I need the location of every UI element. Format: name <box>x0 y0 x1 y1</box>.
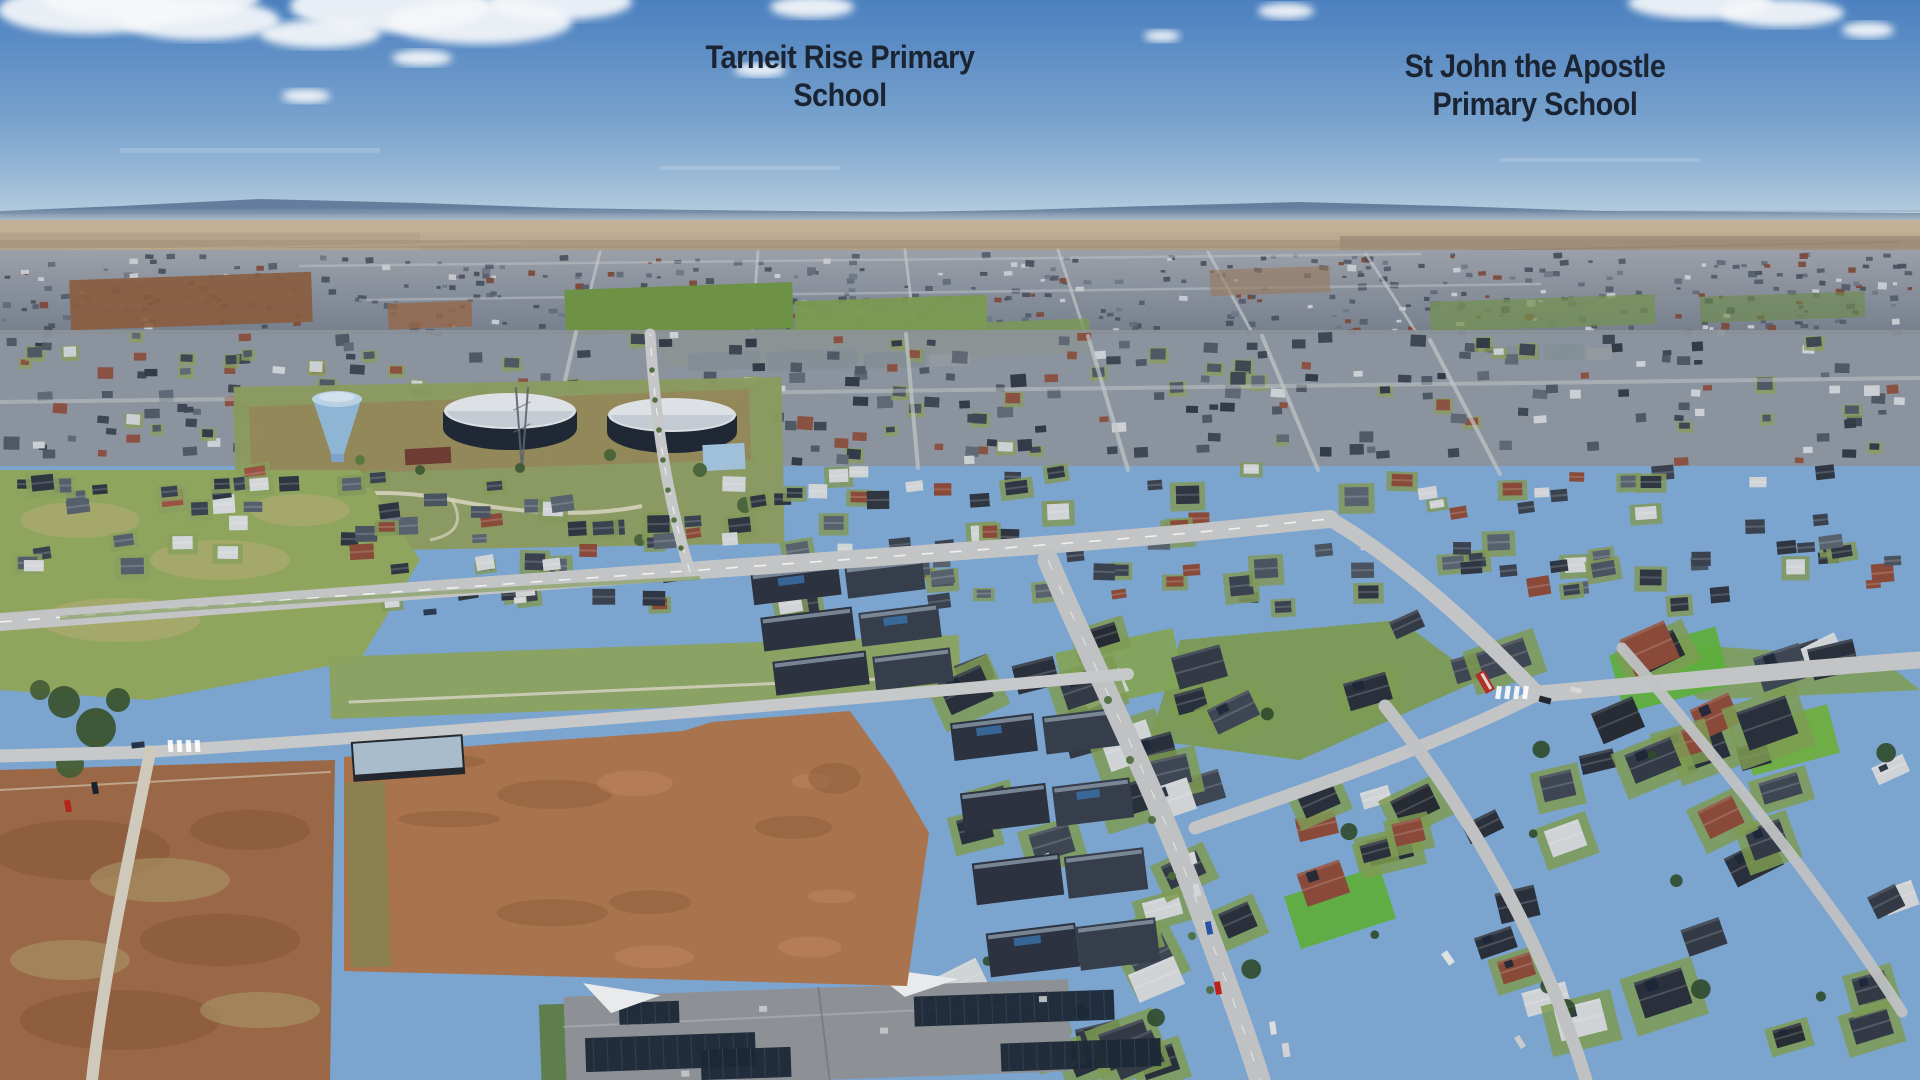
annotation-overlay <box>0 0 1920 1080</box>
st-john-label-line2: Primary School <box>1310 85 1760 123</box>
aerial-photo-canvas: Tarneit Rise Primary School St John the … <box>0 0 1920 1080</box>
st-john-label-line1: St John the Apostle <box>1310 47 1760 85</box>
tarneit-rise-label-line2: School <box>624 76 1056 114</box>
tarneit-rise-label-line1: Tarneit Rise Primary <box>624 38 1056 76</box>
st-john-label: St John the Apostle Primary School <box>1310 47 1760 123</box>
tarneit-rise-label: Tarneit Rise Primary School <box>624 38 1056 114</box>
